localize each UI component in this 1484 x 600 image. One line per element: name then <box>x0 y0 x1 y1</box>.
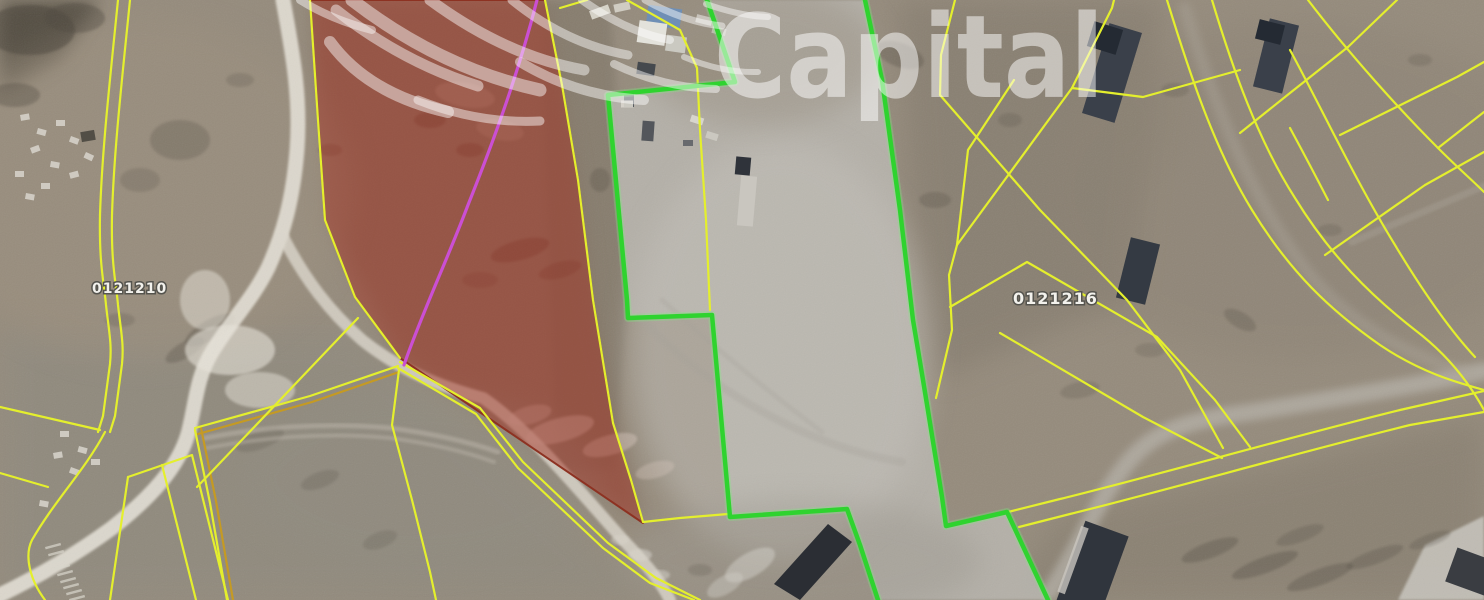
debris-object <box>15 171 24 177</box>
building-footprint <box>683 140 693 146</box>
debris-object <box>60 431 69 437</box>
cadastral-number-left: 0121210 <box>92 281 167 297</box>
building-footprint <box>641 121 654 142</box>
map-viewport[interactable]: 0121210 0121216 Capital <box>0 0 1484 600</box>
building-footprint <box>735 156 752 175</box>
debris-object <box>41 183 50 189</box>
satellite-map-canvas[interactable]: 0121210 0121216 Capital <box>0 0 1484 600</box>
cadastral-number-right: 0121216 <box>1013 289 1098 308</box>
debris-object <box>56 120 65 126</box>
debris-object <box>91 459 100 465</box>
watermark-text: Capital <box>714 0 1104 125</box>
